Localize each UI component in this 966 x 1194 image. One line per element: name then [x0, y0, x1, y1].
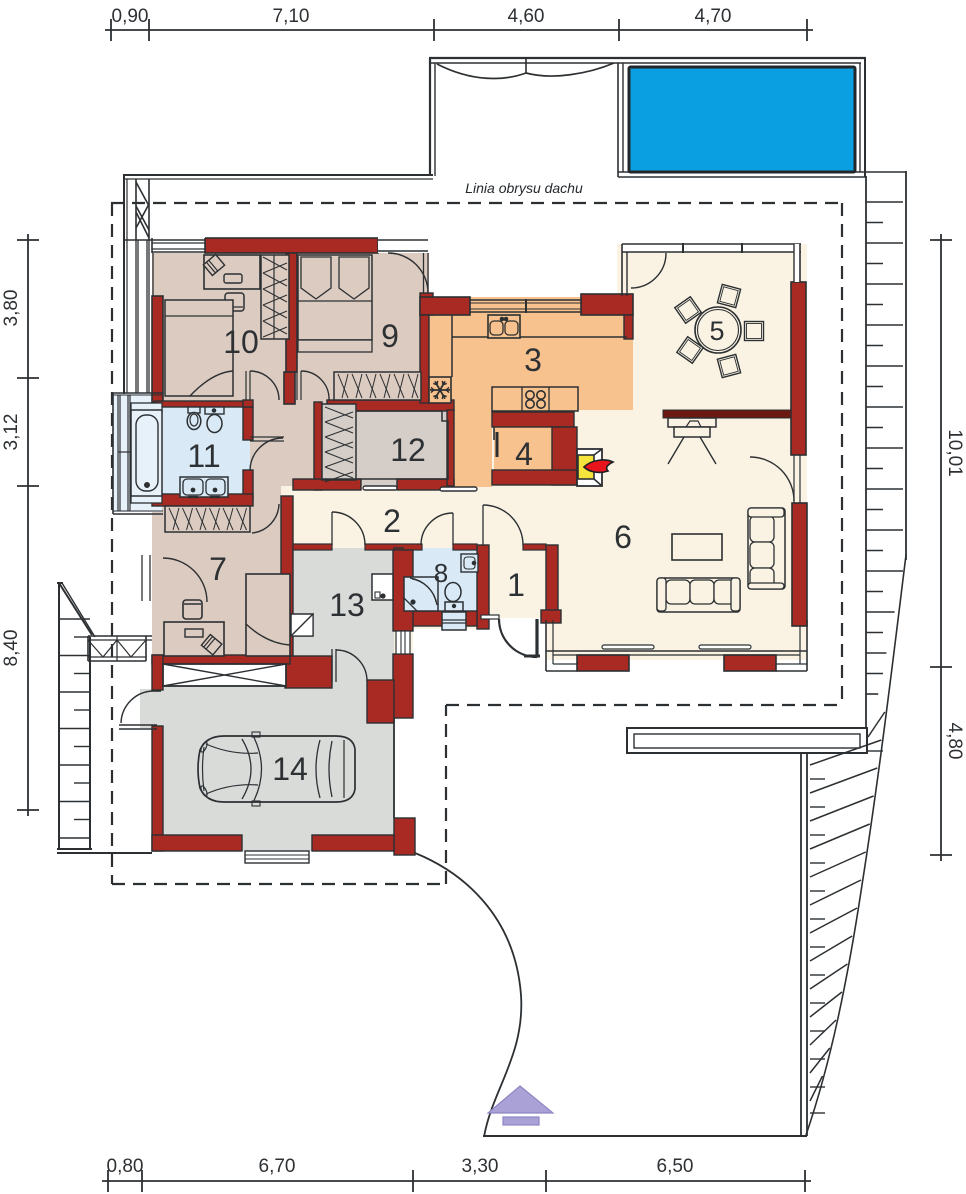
svg-text:Linia obrysu dachu: Linia obrysu dachu	[465, 180, 583, 196]
svg-text:6: 6	[614, 519, 632, 555]
svg-text:13: 13	[329, 587, 365, 623]
svg-text:4,80: 4,80	[944, 723, 965, 760]
svg-text:7,10: 7,10	[273, 6, 310, 27]
svg-text:3: 3	[524, 342, 542, 378]
svg-text:7: 7	[209, 551, 227, 587]
svg-text:11: 11	[187, 438, 220, 474]
svg-text:5: 5	[709, 316, 724, 346]
svg-text:0,90: 0,90	[112, 6, 149, 27]
svg-text:8: 8	[434, 558, 448, 588]
svg-text:3,12: 3,12	[1, 414, 22, 451]
svg-text:3,80: 3,80	[1, 290, 22, 327]
svg-text:0,80: 0,80	[107, 1156, 144, 1177]
svg-text:4: 4	[515, 436, 533, 472]
svg-text:10,01: 10,01	[944, 429, 965, 477]
svg-text:8,40: 8,40	[1, 630, 22, 667]
svg-text:1: 1	[507, 567, 525, 603]
svg-text:2: 2	[383, 503, 401, 539]
svg-text:12: 12	[390, 432, 426, 468]
svg-text:3,30: 3,30	[462, 1156, 499, 1177]
svg-text:14: 14	[272, 751, 308, 787]
svg-text:4,60: 4,60	[508, 6, 545, 27]
svg-text:9: 9	[381, 318, 399, 354]
svg-text:4,70: 4,70	[695, 6, 732, 27]
svg-text:10: 10	[223, 324, 259, 360]
svg-text:6,70: 6,70	[259, 1156, 296, 1177]
svg-text:6,50: 6,50	[657, 1156, 694, 1177]
